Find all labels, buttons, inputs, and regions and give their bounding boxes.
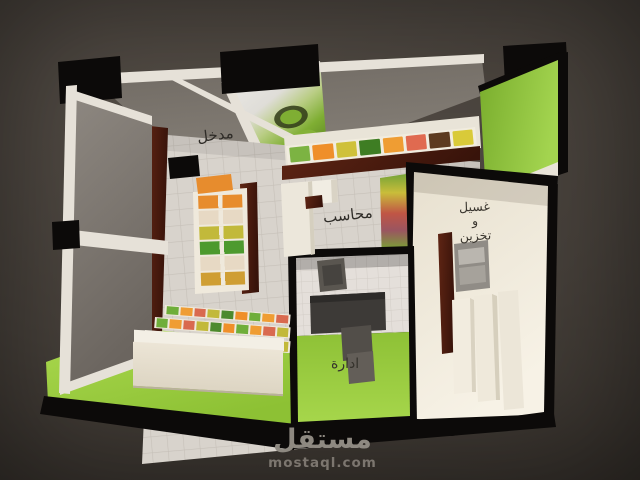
produce-segment (200, 256, 244, 271)
produce-segment (210, 322, 222, 332)
label-admin: ادارة (331, 356, 359, 372)
produce-segment (166, 306, 178, 315)
produce-segment (263, 326, 275, 336)
office-room (288, 246, 417, 431)
produce-segment (277, 327, 289, 337)
produce-segment (312, 143, 334, 160)
produce-segment (276, 315, 288, 324)
gondola-produce-rows (196, 192, 247, 288)
produce-segment (250, 325, 262, 335)
label-washing-storage: غسيل و تخزين (447, 199, 502, 244)
produce-segment (183, 320, 195, 330)
produce-segment (201, 271, 245, 286)
watermark-logo: مستقل (240, 426, 405, 453)
produce-segment (200, 240, 244, 255)
produce-segment (221, 310, 233, 319)
label-washing-line3: تخزين (448, 228, 502, 244)
produce-segment (194, 308, 206, 317)
produce-segment (208, 309, 220, 318)
watermark-site: mostaql.com (240, 455, 405, 471)
produce-segment (405, 134, 427, 151)
produce-segment (156, 318, 168, 328)
washing-machine (454, 240, 490, 292)
storage-shelves (452, 290, 524, 410)
gondola-top-block (168, 155, 200, 179)
facade-corner-block (52, 220, 80, 250)
produce-segment (429, 132, 451, 149)
floorplan-drawing (0, 0, 640, 480)
produce-segment (336, 141, 358, 158)
produce-segment (223, 323, 235, 333)
produce-segment (262, 314, 274, 323)
produce-segment (236, 324, 248, 334)
produce-segment (452, 129, 474, 146)
produce-segment (196, 321, 208, 331)
produce-segment (249, 312, 261, 321)
produce-segment (198, 194, 242, 209)
produce-segment (382, 136, 404, 153)
produce-segment (170, 319, 182, 329)
shop-floorplan-render: مدخل محاسب غسيل و تخزين ادارة مستقل most… (0, 0, 640, 480)
produce-segment (289, 146, 311, 163)
roof-column (220, 44, 320, 94)
counter-side-shadow (331, 179, 338, 203)
produce-segment (199, 210, 243, 225)
watermark: مستقل mostaql.com (240, 426, 405, 471)
office-chair (317, 258, 347, 292)
front-display-base (133, 342, 283, 396)
produce-segment (199, 225, 243, 240)
counter-maroon-accent (305, 195, 323, 209)
produce-segment (180, 307, 192, 316)
produce-segment (359, 139, 381, 156)
produce-segment (235, 311, 247, 320)
